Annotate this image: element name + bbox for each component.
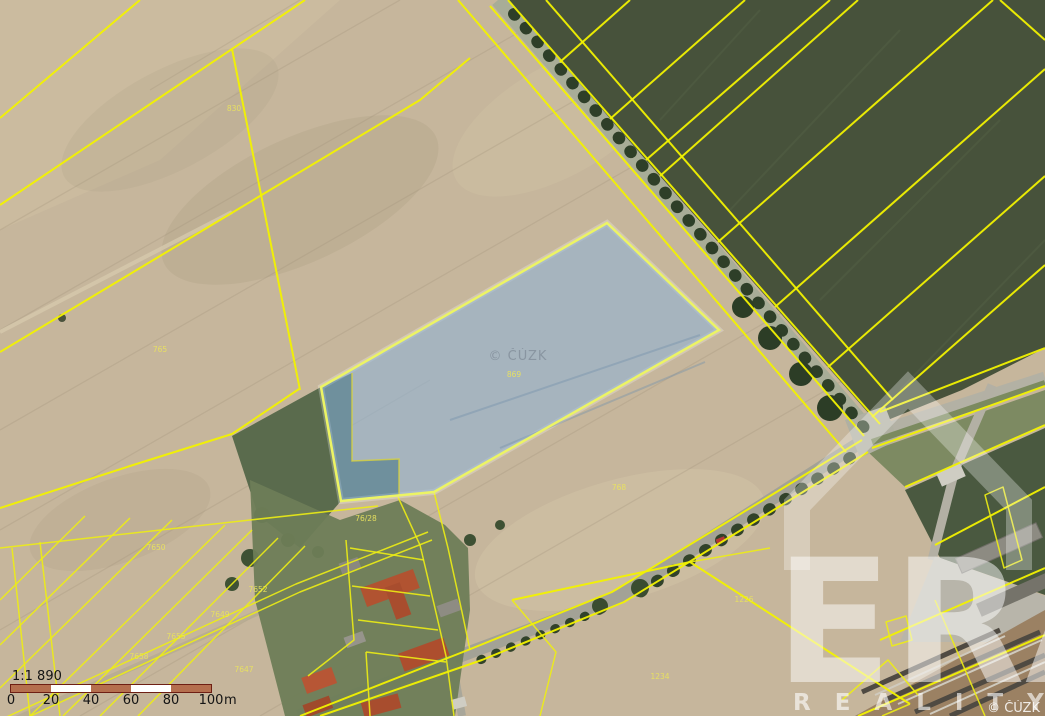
parcel-number-label: 830 <box>227 104 242 113</box>
parcel-number-label: 7647 <box>234 665 253 674</box>
scale-ratio-label: 1:1 890 <box>12 669 62 684</box>
parcel-number-label: 1226 <box>734 595 753 604</box>
parcel-number-label: 7655 <box>166 632 185 641</box>
parcel-number-label: 7652 <box>248 585 267 594</box>
parcel-number-label: 1234 <box>650 672 669 681</box>
scale-tick: 60 <box>123 693 140 708</box>
cadastral-map-canvas[interactable]: 83076586976876/2876507652764976557658764… <box>0 0 1045 716</box>
parcel-number-label: 765 <box>153 345 168 354</box>
scale-tick: 0 <box>7 693 15 708</box>
parcel-number-label: 7650 <box>146 543 165 552</box>
scale-unit-label: m <box>224 693 237 708</box>
brand-watermark: ERA <box>775 522 1045 716</box>
parcel-number-label: 768 <box>612 483 627 492</box>
parcel-number-label: 869 <box>507 370 522 379</box>
parcel-number-label: 7649 <box>210 610 229 619</box>
scale-tick: 20 <box>43 693 60 708</box>
parcel-number-label: 7658 <box>129 652 148 661</box>
parcel-number-label: 76/28 <box>355 514 377 523</box>
scale-tick: 40 <box>83 693 100 708</box>
corner-copyright: © ČÚZK <box>987 700 1040 716</box>
scale-tick: 100 <box>199 693 224 708</box>
center-copyright-watermark: © ČÚZK <box>489 348 548 364</box>
scale-tick: 80 <box>163 693 180 708</box>
map-viewport: 83076586976876/2876507652764976557658764… <box>0 0 1045 716</box>
